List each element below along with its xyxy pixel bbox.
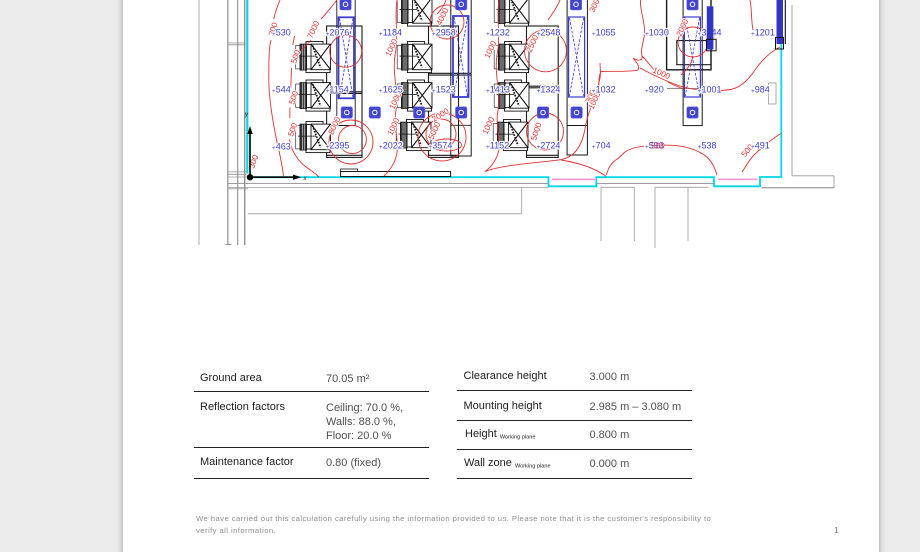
svg-text:+1184: +1184 bbox=[379, 27, 402, 38]
svg-text:+1152: +1152 bbox=[486, 140, 509, 151]
svg-text:500: 500 bbox=[651, 142, 665, 151]
svg-text:+1523: +1523 bbox=[432, 84, 456, 95]
svg-text:+2022: +2022 bbox=[379, 140, 403, 151]
svg-text:+3574: +3574 bbox=[429, 140, 453, 151]
svg-text:+2958: +2958 bbox=[432, 27, 456, 38]
svg-text:+530: +530 bbox=[272, 27, 291, 38]
svg-text:+920: +920 bbox=[645, 84, 664, 95]
svg-text:+1324: +1324 bbox=[537, 84, 561, 95]
svg-text:+2548: +2548 bbox=[537, 27, 561, 38]
svg-text:5000: 5000 bbox=[529, 121, 543, 142]
svg-text:+1032: +1032 bbox=[592, 84, 616, 95]
svg-text:+2076: +2076 bbox=[326, 27, 350, 38]
svg-text:+1232: +1232 bbox=[486, 27, 510, 38]
svg-text:+984: +984 bbox=[751, 84, 770, 95]
svg-text:4000: 4000 bbox=[435, 6, 451, 27]
svg-text:+1154: +1154 bbox=[326, 84, 349, 95]
svg-text:+704: +704 bbox=[592, 140, 611, 151]
svg-text:+1055: +1055 bbox=[592, 27, 616, 38]
svg-text:+2724: +2724 bbox=[537, 140, 561, 151]
svg-text:7000: 7000 bbox=[306, 19, 322, 40]
svg-text:3000: 3000 bbox=[588, 0, 604, 14]
svg-text:+1001: +1001 bbox=[698, 84, 722, 95]
svg-text:+1413: +1413 bbox=[486, 84, 510, 95]
svg-text:+1030: +1030 bbox=[645, 27, 669, 38]
svg-text:+2395: +2395 bbox=[326, 140, 350, 151]
svg-text:+1201: +1201 bbox=[751, 27, 775, 38]
svg-text:+538: +538 bbox=[698, 140, 717, 151]
svg-text:+544: +544 bbox=[272, 84, 291, 95]
svg-text:+463: +463 bbox=[272, 142, 291, 153]
svg-text:+491: +491 bbox=[751, 140, 770, 151]
svg-text:+1625: +1625 bbox=[379, 84, 403, 95]
